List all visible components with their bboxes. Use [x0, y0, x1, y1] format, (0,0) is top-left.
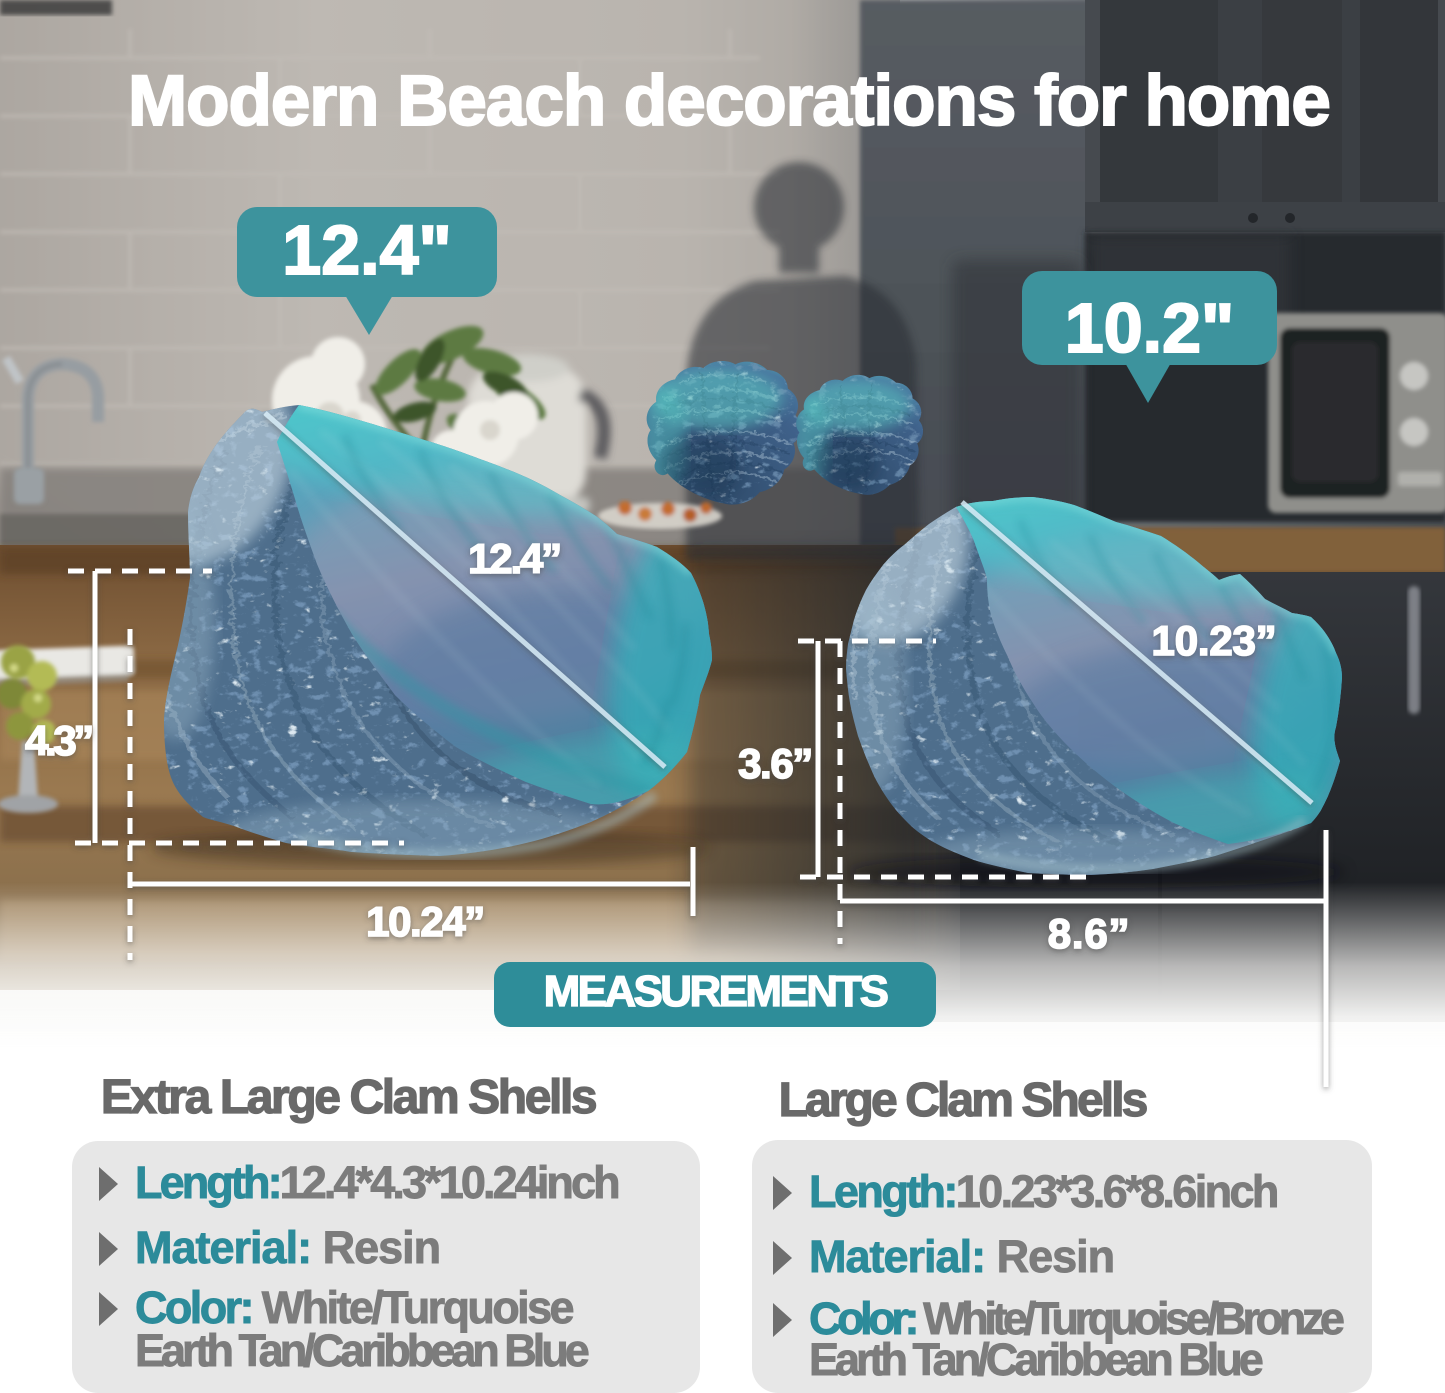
svg-text:3.6”: 3.6”	[738, 740, 812, 787]
svg-text:4.3”: 4.3”	[25, 717, 91, 764]
svg-text:10.24”: 10.24”	[366, 898, 484, 945]
svg-text:10.23”: 10.23”	[1152, 617, 1277, 664]
svg-text:8.6”: 8.6”	[1048, 910, 1131, 957]
svg-text:12.4”: 12.4”	[468, 535, 560, 582]
